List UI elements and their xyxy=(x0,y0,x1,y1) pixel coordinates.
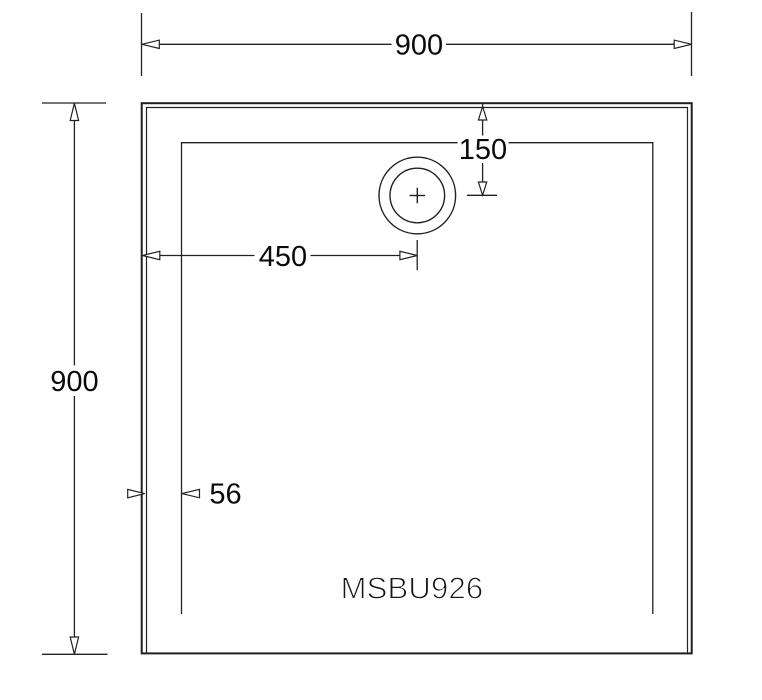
svg-text:MSBU926: MSBU926 xyxy=(341,571,484,606)
svg-text:900: 900 xyxy=(395,30,443,62)
svg-text:150: 150 xyxy=(459,134,507,166)
svg-text:900: 900 xyxy=(50,366,98,398)
svg-text:450: 450 xyxy=(259,241,307,273)
svg-text:56: 56 xyxy=(209,479,241,511)
